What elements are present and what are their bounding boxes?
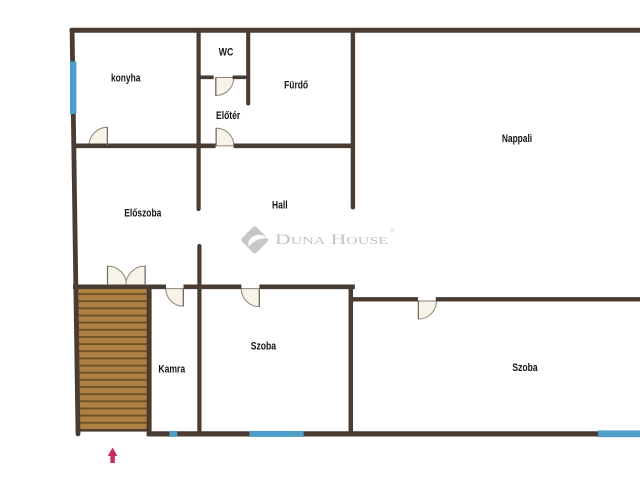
svg-text:Fürdő: Fürdő [284,80,308,92]
svg-text:Szoba: Szoba [512,362,538,374]
svg-text:Nappali: Nappali [502,133,532,145]
svg-text:Előtér: Előtér [216,110,241,122]
svg-text:WC: WC [219,46,234,58]
svg-text:Előszoba: Előszoba [124,208,162,220]
svg-text:DUNA HOUSE: DUNA HOUSE [275,232,389,248]
svg-text:konyha: konyha [111,73,141,85]
svg-text:Hall: Hall [272,199,288,211]
svg-text:Szoba: Szoba [251,340,277,352]
svg-text:Kamra: Kamra [158,363,185,375]
svg-text:®: ® [390,228,395,235]
